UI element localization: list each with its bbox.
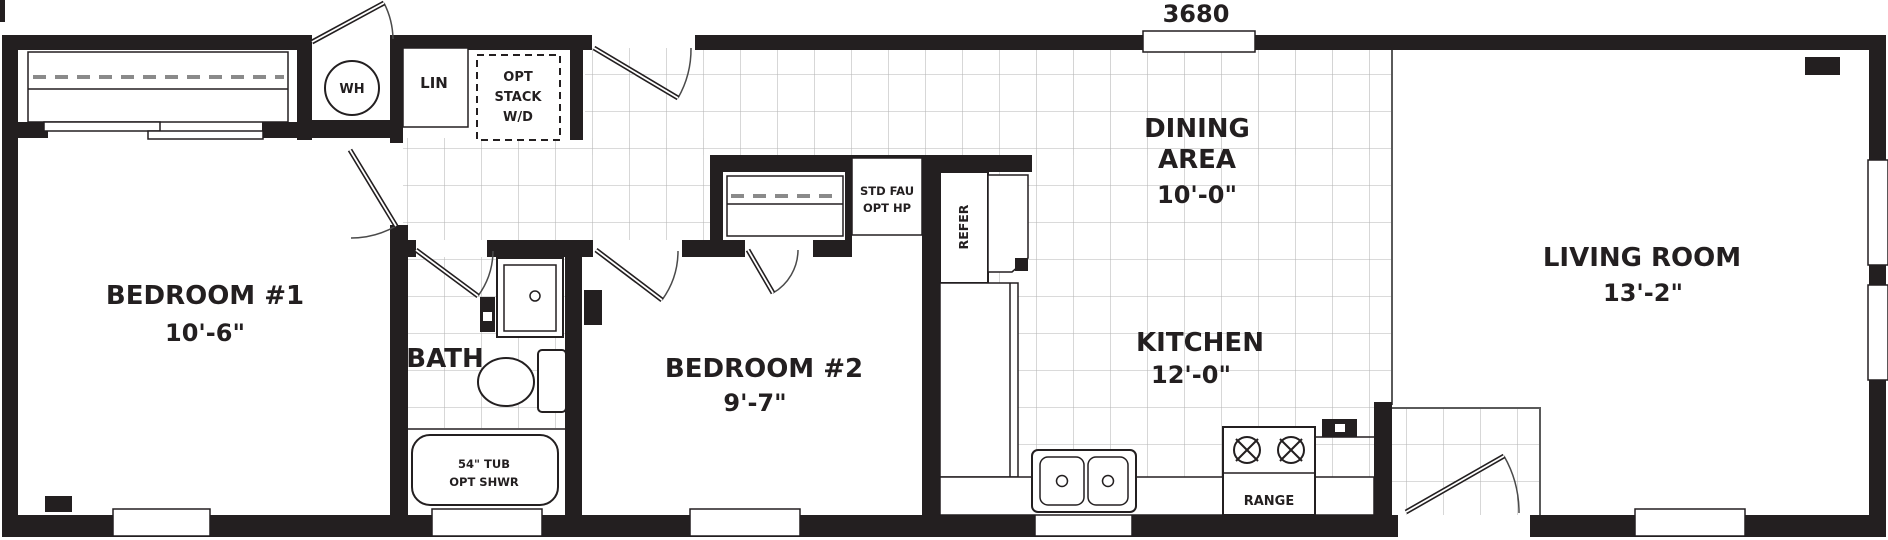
marker-bedroom1: [45, 496, 72, 512]
range-label: RANGE: [1244, 494, 1295, 509]
wall-wh-niche-bottom: [310, 120, 390, 138]
dining-name-line1-label: DINING: [1144, 114, 1250, 144]
wall-bedroom2-east: [922, 155, 940, 515]
window-living-right-2: [1868, 285, 1888, 380]
window-living-bottom: [1635, 509, 1745, 536]
closet1-sliding-door-1: [44, 122, 160, 131]
model-number-label: 3680: [1163, 0, 1230, 28]
furnace-label-1: STD FAU: [860, 184, 914, 198]
dining-name-line2-label: AREA: [1158, 145, 1236, 175]
bedroom1-name-label: BEDROOM #1: [106, 281, 304, 311]
wall-tick-top-left: [0, 0, 5, 22]
window-bath: [432, 509, 542, 536]
counter-left-strip: [940, 283, 1018, 477]
toilet-bowl: [478, 358, 534, 406]
wall-hall-south-3: [682, 240, 745, 257]
closet1-sliding-door-2: [148, 131, 263, 139]
window-bedroom2: [690, 509, 800, 536]
tile-dining-kitchen: [1032, 48, 1392, 477]
bath-cabinet-detail: [483, 312, 492, 321]
wall-entry-stub: [1374, 402, 1392, 515]
wall-closet1-front-right: [262, 122, 312, 138]
marker-living-room: [1805, 57, 1840, 75]
toilet-tank: [538, 350, 566, 412]
living-dim-label: 13'-2": [1603, 279, 1683, 307]
wall-hall-south-1: [390, 240, 416, 257]
floor-plan: 3680 BEDROOM #1 10'-6" BATH BEDROOM #2 9…: [0, 0, 1888, 540]
kitchen-dim-label: 12'-0": [1151, 361, 1231, 389]
dining-dim-label: 10'-0": [1157, 181, 1237, 209]
washer-dryer-label-2: STACK: [495, 90, 543, 105]
window-dining-top: [1143, 31, 1255, 52]
bedroom2-name-label: BEDROOM #2: [665, 354, 863, 384]
water-heater-label: WH: [339, 82, 364, 97]
tub-label-2: OPT SHWR: [449, 475, 519, 489]
living-name-label: LIVING ROOM: [1543, 243, 1741, 273]
counter-corner-marker: [1015, 258, 1028, 271]
floor-plan-page: 3680 BEDROOM #1 10'-6" BATH BEDROOM #2 9…: [0, 0, 1888, 540]
wall-bath-east: [565, 240, 582, 518]
kitchen-name-label: KITCHEN: [1136, 328, 1264, 358]
furnace-label-2: OPT HP: [863, 201, 911, 215]
wall-hall-south-4: [813, 240, 852, 257]
bedroom2-dim-label: 9'-7": [723, 389, 786, 417]
window-living-right-1: [1868, 160, 1888, 265]
wall-wd-east: [570, 48, 583, 140]
tub-label-1: 54" TUB: [458, 457, 510, 471]
wall-top-3: [695, 35, 1886, 50]
counter-corner: [988, 175, 1028, 272]
bath-name-label: BATH: [406, 344, 483, 374]
wall-closet2-east: [845, 155, 852, 240]
washer-dryer-label-3: W/D: [503, 110, 533, 125]
refrigerator-label: REFER: [956, 204, 971, 249]
appliance-marker-detail: [1335, 424, 1345, 432]
wall-linen-west: [390, 48, 403, 143]
washer-dryer-label-1: OPT: [503, 70, 533, 85]
window-bedroom1: [113, 509, 210, 536]
tile-hall: [403, 138, 710, 240]
bedroom1-dim-label: 10'-6": [165, 319, 245, 347]
marker-bedroom2: [584, 290, 602, 325]
wall-left: [2, 35, 18, 537]
wall-top-1: [2, 35, 305, 50]
linen-label: LIN: [420, 74, 448, 92]
